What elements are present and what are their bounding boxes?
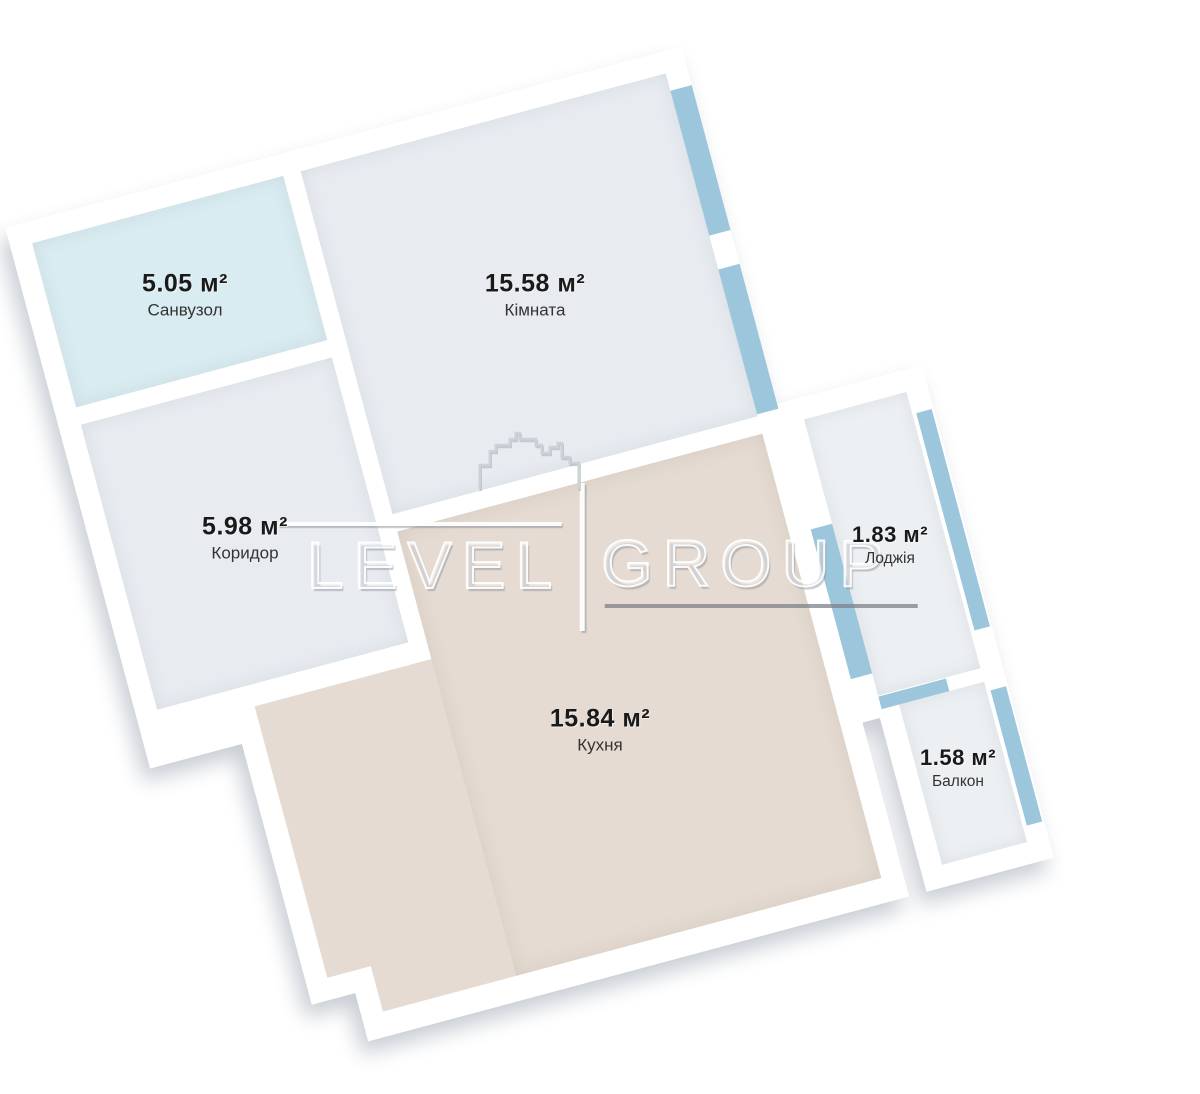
living-room-area: 15.58 м² [485, 270, 585, 299]
bathroom-label: 5.05 м² Санвузол [142, 270, 228, 321]
corridor-label: 5.98 м² Коридор [202, 513, 288, 564]
corridor-area: 5.98 м² [202, 513, 288, 542]
balcony-name: Балкон [920, 773, 996, 791]
living-room-label: 15.58 м² Кімната [485, 270, 585, 321]
loggia-name: Лоджія [852, 550, 928, 568]
balcony-label: 1.58 м² Балкон [920, 745, 996, 791]
balcony-area: 1.58 м² [920, 745, 996, 771]
bathroom-area: 5.05 м² [142, 270, 228, 299]
kitchen-area: 15.84 м² [550, 705, 650, 734]
living-room-name: Кімната [485, 301, 585, 321]
corridor-name: Коридор [202, 544, 288, 564]
kitchen-name: Кухня [550, 736, 650, 756]
loggia-label: 1.83 м² Лоджія [852, 522, 928, 568]
kitchen-label: 15.84 м² Кухня [550, 705, 650, 756]
bathroom-name: Санвузол [142, 301, 228, 321]
floorplan-canvas: LEVEL GROUP 5.05 м² Санвузол 15.58 м² Кі… [0, 0, 1200, 1094]
loggia-area: 1.83 м² [852, 522, 928, 548]
